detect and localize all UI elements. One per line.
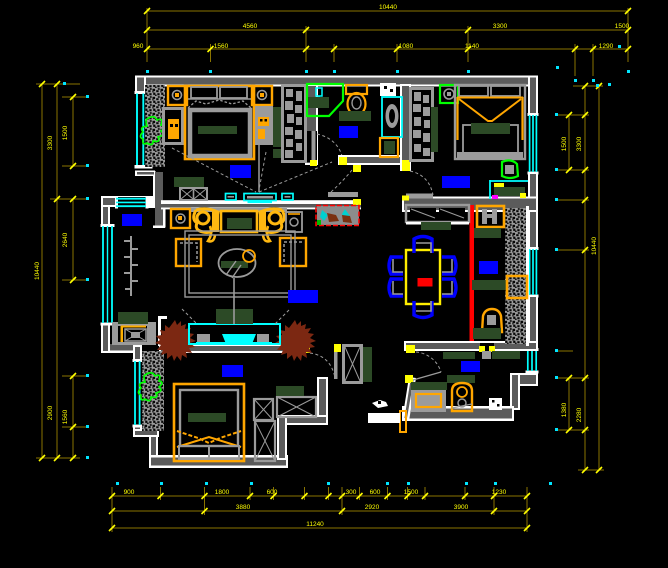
svg-text:300: 300 xyxy=(346,489,357,496)
svg-text:1560: 1560 xyxy=(62,409,69,424)
svg-text:3900: 3900 xyxy=(454,504,469,511)
svg-text:1230: 1230 xyxy=(492,489,507,496)
svg-text:10440: 10440 xyxy=(34,262,41,280)
svg-text:3300: 3300 xyxy=(576,136,583,151)
svg-text:1560: 1560 xyxy=(214,43,229,50)
svg-text:1380: 1380 xyxy=(561,402,568,417)
svg-text:2920: 2920 xyxy=(365,504,380,511)
svg-text:900: 900 xyxy=(124,489,135,496)
svg-text:1080: 1080 xyxy=(399,43,414,50)
svg-text:2640: 2640 xyxy=(62,232,69,247)
svg-text:10440: 10440 xyxy=(379,4,397,11)
svg-text:2280: 2280 xyxy=(576,407,583,422)
svg-text:1290: 1290 xyxy=(599,43,614,50)
svg-text:1500: 1500 xyxy=(561,136,568,151)
svg-text:600: 600 xyxy=(267,489,278,496)
svg-text:3300: 3300 xyxy=(493,23,508,30)
svg-text:1500: 1500 xyxy=(615,23,630,30)
svg-text:2900: 2900 xyxy=(47,405,54,420)
svg-text:10440: 10440 xyxy=(591,237,598,255)
svg-text:1500: 1500 xyxy=(404,489,419,496)
svg-text:1500: 1500 xyxy=(62,125,69,140)
svg-text:11240: 11240 xyxy=(306,521,324,528)
svg-text:3300: 3300 xyxy=(47,135,54,150)
svg-text:960: 960 xyxy=(133,43,144,50)
svg-text:4560: 4560 xyxy=(243,23,258,30)
svg-text:1800: 1800 xyxy=(215,489,230,496)
svg-text:600: 600 xyxy=(370,489,381,496)
svg-text:3880: 3880 xyxy=(236,504,251,511)
svg-text:1140: 1140 xyxy=(465,43,479,50)
